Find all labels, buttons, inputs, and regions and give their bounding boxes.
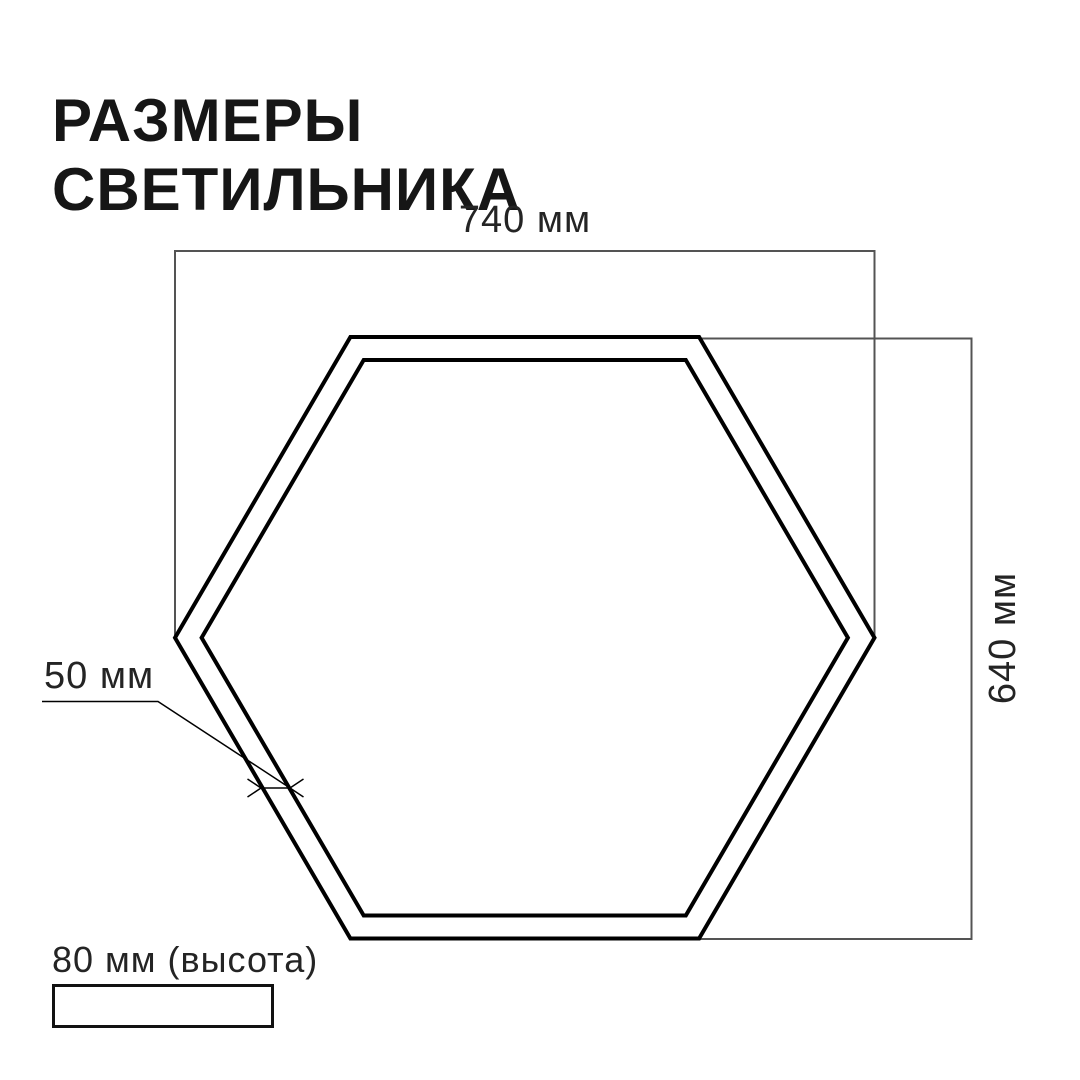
dimension-depth-label: 80 мм (высота) (52, 939, 318, 981)
height-profile-rectangle (54, 986, 273, 1027)
dimension-width-label: 740 мм (175, 199, 875, 242)
dimension-diagram (0, 0, 1080, 1080)
dimension-height-label: 640 мм (982, 570, 1024, 706)
poster-canvas: РАЗМЕРЫСВЕТИЛЬНИКА 740 мм 640 мм 50 мм 8… (0, 0, 1080, 1080)
dimension-profile-label: 50 мм (44, 655, 154, 698)
